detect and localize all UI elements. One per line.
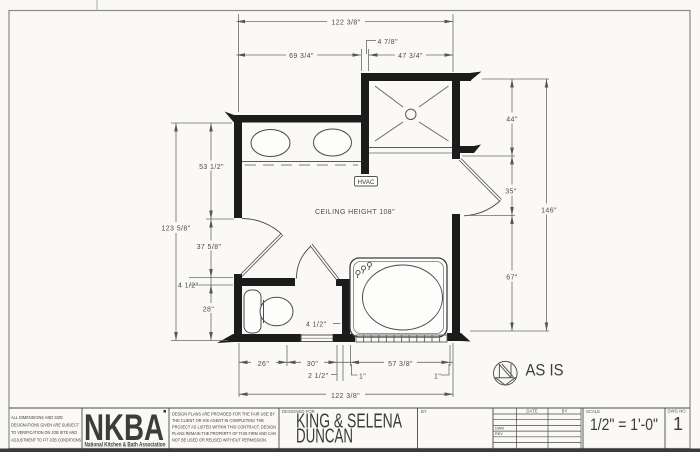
svg-text:DUNCAN: DUNCAN — [296, 426, 353, 448]
svg-text:44": 44" — [506, 116, 518, 123]
svg-text:37 5/8": 37 5/8" — [197, 244, 222, 251]
svg-text:122 3/8": 122 3/8" — [331, 393, 360, 400]
svg-text:35": 35" — [505, 188, 517, 195]
svg-text:4 1/2": 4 1/2" — [306, 322, 327, 329]
svg-text:BY: BY — [562, 409, 568, 414]
svg-text:47 3/4": 47 3/4" — [398, 53, 423, 60]
svg-text:1": 1" — [434, 373, 441, 380]
svg-text:1/2" = 1'-0": 1/2" = 1'-0" — [590, 415, 658, 434]
svg-text:PLANS REMAIN THE PROPERTY OF T: PLANS REMAIN THE PROPERTY OF THIS FIRM A… — [172, 431, 276, 436]
svg-text:57 3/8": 57 3/8" — [388, 361, 413, 368]
svg-text:CEILING HEIGHT 108": CEILING HEIGHT 108" — [315, 209, 395, 216]
svg-text:69 3/4": 69 3/4" — [289, 53, 314, 60]
svg-text:SCALE: SCALE — [586, 409, 600, 414]
svg-text:PROJECT AS LISTED WITHIN THIS: PROJECT AS LISTED WITHIN THIS CONTRACT. … — [172, 425, 276, 430]
svg-text:NOT BE USED OR REUSED WITHOUT: NOT BE USED OR REUSED WITHOUT PERMISSION… — [172, 438, 267, 443]
svg-text:26": 26" — [258, 361, 270, 368]
svg-text:National Kitchen & Bath Associ: National Kitchen & Bath Association — [85, 443, 166, 449]
svg-text:4 7/8": 4 7/8" — [378, 39, 399, 46]
svg-text:67": 67" — [506, 274, 518, 281]
svg-text:AS IS: AS IS — [526, 361, 564, 380]
svg-text:1": 1" — [359, 373, 366, 380]
svg-text:30": 30" — [307, 361, 319, 368]
svg-text:4 1/2": 4 1/2" — [178, 283, 199, 290]
svg-text:THE CLIENT OR HIS AGENT IN COM: THE CLIENT OR HIS AGENT IN COMPLETING TH… — [172, 418, 264, 423]
svg-text:53 1/2": 53 1/2" — [199, 164, 224, 171]
svg-text:1: 1 — [673, 414, 683, 434]
svg-text:DWN: DWN — [495, 427, 504, 431]
svg-text:DATE: DATE — [526, 409, 537, 414]
svg-text:DWG NO.: DWG NO. — [668, 409, 687, 414]
svg-text:ALL DIMENSIONS AND SIZE: ALL DIMENSIONS AND SIZE — [11, 415, 63, 420]
svg-text:HVAC: HVAC — [357, 179, 374, 186]
svg-text:ADJUSTMENT TO FIT JOB CONDITIO: ADJUSTMENT TO FIT JOB CONDITIONS — [11, 438, 81, 443]
svg-text:TO VERIFICATION ON JOB SITE AN: TO VERIFICATION ON JOB SITE AND — [11, 430, 77, 435]
svg-text:28": 28" — [203, 306, 215, 313]
svg-text:DESIGN PLANS ARE PROVIDED FOR: DESIGN PLANS ARE PROVIDED FOR THE FAIR U… — [172, 412, 275, 417]
svg-text:DESIGNATIONS GIVEN ARE SUBJECT: DESIGNATIONS GIVEN ARE SUBJECT — [11, 423, 79, 428]
svg-text:146": 146" — [541, 207, 557, 214]
svg-text:122 3/8": 122 3/8" — [331, 20, 360, 27]
svg-text:BY: BY — [421, 409, 427, 414]
svg-text:REV: REV — [495, 432, 503, 436]
svg-text:123 5/8": 123 5/8" — [161, 226, 190, 233]
svg-text:2 1/2": 2 1/2" — [308, 373, 329, 380]
